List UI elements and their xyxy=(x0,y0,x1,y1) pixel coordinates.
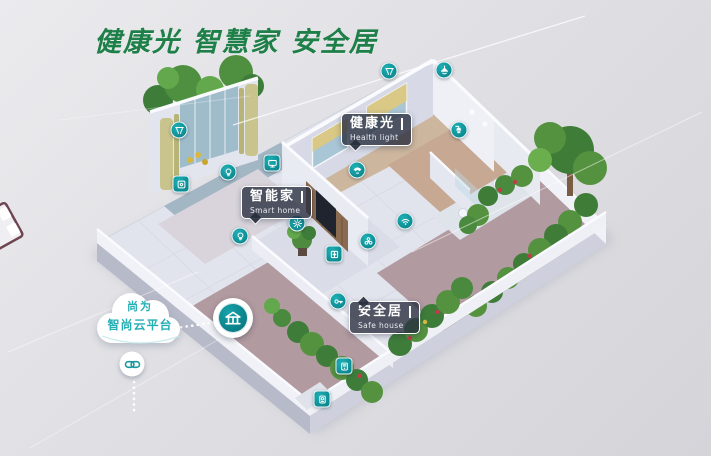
fx-overlay xyxy=(0,0,711,456)
curtain-icon xyxy=(381,63,398,80)
cloud-platform-badge: 尚为 智尚云平台 xyxy=(86,284,194,358)
curtain-icon xyxy=(171,122,188,139)
wall-switch-icon xyxy=(173,176,190,193)
light-bulb-icon xyxy=(232,228,249,245)
callout-safe-house-zh: 安全居 xyxy=(358,305,403,320)
fan-icon xyxy=(360,233,377,250)
callout-bar xyxy=(409,306,411,318)
cloud-line1: 尚为 xyxy=(86,298,194,314)
callout-safe-house: 安全居 Safe house xyxy=(349,301,420,334)
doorbell-icon xyxy=(314,391,331,408)
callout-health-light-zh: 健康光 xyxy=(350,117,395,132)
wifi-icon xyxy=(397,213,414,230)
intercom-icon xyxy=(336,358,353,375)
shower-icon xyxy=(451,122,468,139)
ceiling-light-icon xyxy=(436,62,453,79)
key-icon xyxy=(330,293,347,310)
light-bulb-icon xyxy=(220,164,237,181)
smart-home-poster: 健康光 智慧家 安全居 尚为 智尚云平台 xyxy=(0,0,711,456)
callout-smart-home-zh: 智能家 xyxy=(250,190,295,205)
cloud-link-icon xyxy=(120,352,145,377)
double-door-icon xyxy=(326,246,343,263)
gateway-hub-icon xyxy=(213,298,253,338)
callout-bar xyxy=(301,191,303,203)
light-streaks xyxy=(8,16,702,448)
phone-icon xyxy=(349,162,366,179)
callout-health-light-en: Health light xyxy=(350,133,403,142)
callout-smart-home-en: Smart home xyxy=(250,206,303,215)
callout-smart-home: 智能家 Smart home xyxy=(241,186,312,219)
tv-icon xyxy=(264,155,281,172)
callout-safe-house-en: Safe house xyxy=(358,321,411,330)
callout-bar xyxy=(401,118,403,130)
cloud-line2: 智尚云平台 xyxy=(86,316,194,333)
callout-health-light: 健康光 Health light xyxy=(341,113,412,146)
